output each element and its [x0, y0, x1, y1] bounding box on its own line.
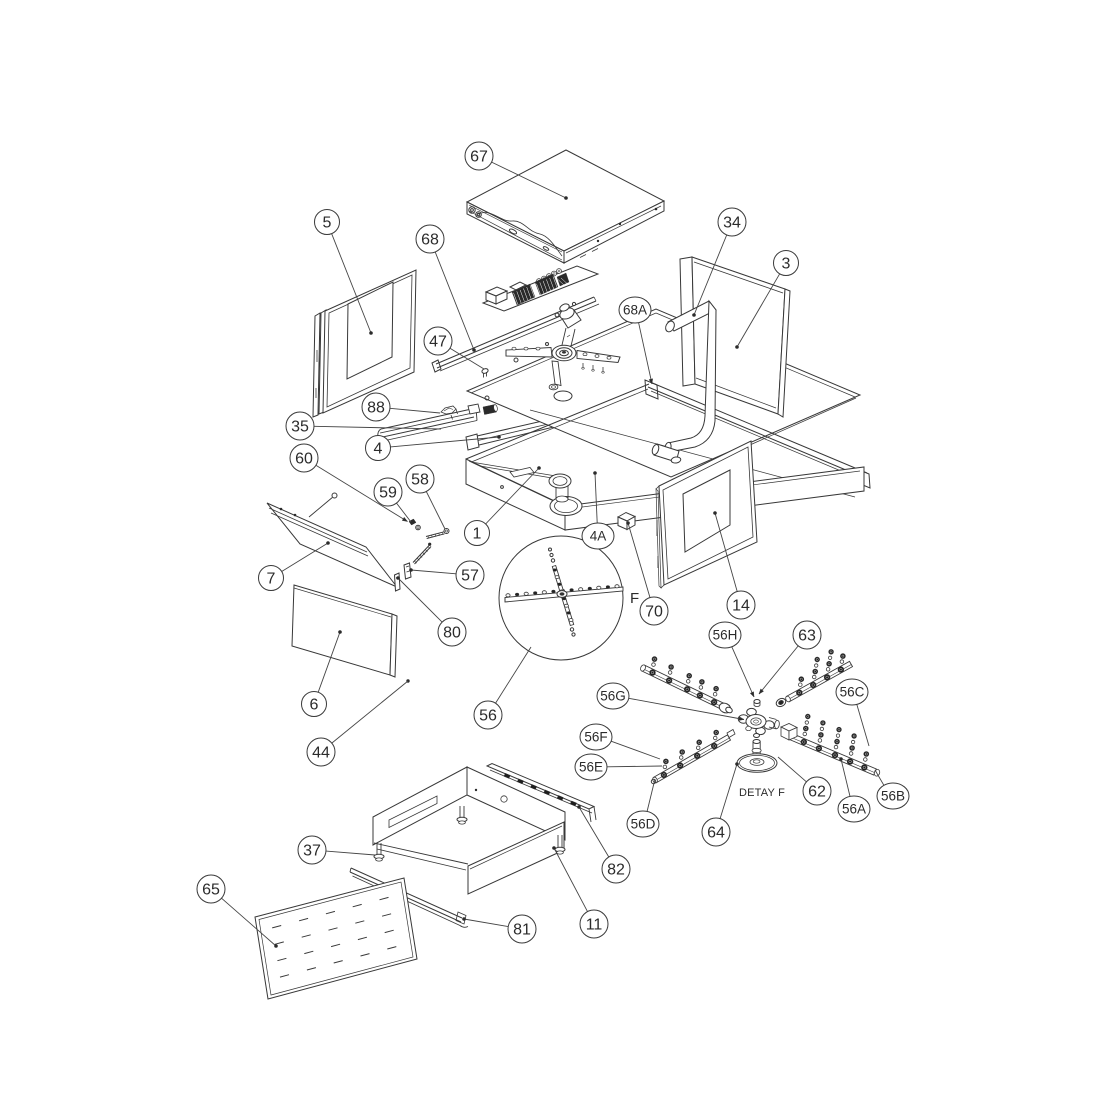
svg-text:6: 6 — [310, 697, 319, 714]
svg-text:14: 14 — [732, 598, 750, 615]
svg-text:1: 1 — [473, 526, 482, 543]
svg-text:63: 63 — [798, 628, 816, 645]
svg-text:47: 47 — [429, 334, 447, 351]
svg-text:11: 11 — [586, 917, 603, 934]
svg-text:56D: 56D — [631, 817, 656, 832]
svg-text:4: 4 — [374, 441, 383, 458]
svg-text:56E: 56E — [579, 760, 603, 775]
svg-text:80: 80 — [443, 625, 461, 642]
svg-text:5: 5 — [323, 215, 332, 232]
svg-text:82: 82 — [607, 862, 625, 879]
svg-text:56G: 56G — [600, 689, 626, 704]
svg-text:64: 64 — [707, 825, 725, 842]
svg-text:68A: 68A — [623, 303, 647, 318]
svg-text:65: 65 — [202, 882, 220, 899]
svg-text:56C: 56C — [840, 685, 865, 700]
svg-text:88: 88 — [367, 400, 385, 417]
svg-text:56A: 56A — [842, 802, 866, 817]
svg-text:35: 35 — [291, 419, 309, 436]
svg-text:DETAY F: DETAY F — [739, 787, 785, 799]
svg-text:7: 7 — [267, 571, 276, 588]
svg-text:37: 37 — [303, 843, 321, 860]
svg-text:44: 44 — [312, 745, 330, 762]
svg-text:68: 68 — [421, 232, 439, 249]
svg-text:56F: 56F — [584, 730, 607, 745]
svg-text:59: 59 — [379, 485, 397, 502]
svg-text:34: 34 — [723, 215, 741, 232]
svg-text:56H: 56H — [713, 628, 738, 643]
svg-text:58: 58 — [411, 472, 429, 489]
svg-text:4A: 4A — [590, 529, 607, 544]
svg-text:81: 81 — [513, 922, 531, 939]
svg-text:67: 67 — [470, 149, 488, 166]
svg-text:F: F — [630, 590, 639, 607]
svg-text:70: 70 — [645, 604, 663, 621]
svg-text:56: 56 — [479, 708, 497, 725]
svg-text:56B: 56B — [881, 789, 905, 804]
svg-text:62: 62 — [808, 784, 826, 801]
svg-text:57: 57 — [461, 568, 479, 585]
svg-text:3: 3 — [782, 256, 791, 273]
svg-text:60: 60 — [295, 451, 313, 468]
